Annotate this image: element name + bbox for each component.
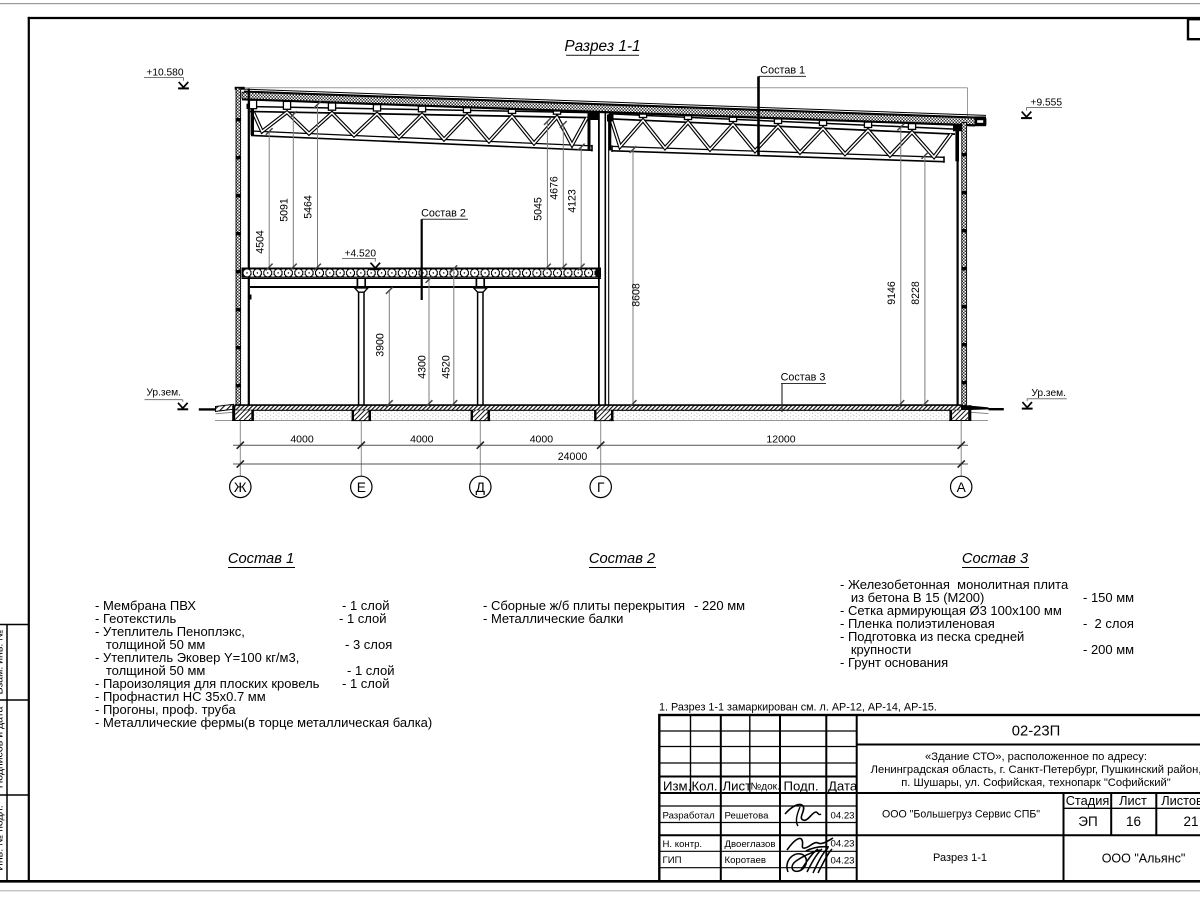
svg-text:04.23: 04.23	[831, 856, 855, 867]
svg-text:Д: Д	[476, 480, 486, 495]
svg-text:04.23: 04.23	[831, 810, 855, 821]
svg-text:- 3 слоя: - 3 слоя	[345, 637, 392, 652]
svg-text:4000: 4000	[410, 434, 434, 446]
svg-text:- 200 мм: - 200 мм	[1083, 642, 1134, 657]
svg-text:4000: 4000	[530, 434, 554, 446]
svg-text:16: 16	[1126, 814, 1141, 829]
svg-text:Решетова: Решетова	[725, 810, 770, 821]
svg-text:Кол.: Кол.	[692, 778, 718, 793]
svg-text:4520: 4520	[441, 355, 453, 379]
svg-text:- 220 мм: - 220 мм	[694, 598, 745, 613]
svg-text:+4.520: +4.520	[345, 249, 377, 260]
svg-text:Ж: Ж	[234, 480, 247, 495]
svg-text:А: А	[957, 480, 967, 495]
svg-text:Состав 2: Состав 2	[589, 551, 655, 567]
svg-text:4123: 4123	[567, 189, 579, 213]
svg-text:5091: 5091	[279, 198, 291, 222]
svg-text:4504: 4504	[255, 230, 267, 254]
svg-text:Е: Е	[357, 480, 366, 495]
svg-text:Ур.зем.: Ур.зем.	[146, 388, 181, 399]
svg-text:12000: 12000	[766, 434, 795, 446]
svg-text:Лист: Лист	[723, 778, 752, 793]
svg-text:Дата: Дата	[828, 778, 858, 793]
svg-text:04.23: 04.23	[831, 839, 855, 850]
svg-text:Ур.зем.: Ур.зем.	[1031, 388, 1066, 399]
svg-text:Ленинградская область, г. Санк: Ленинградская область, г. Санкт-Петербур…	[871, 764, 1200, 776]
svg-text:9146: 9146	[886, 281, 898, 305]
svg-text:ЭП: ЭП	[1078, 814, 1097, 829]
svg-text:Подписов и дата: Подписов и дата	[0, 707, 6, 789]
svg-text:Двоеглазов: Двоеглазов	[725, 839, 776, 850]
svg-text:Г: Г	[597, 480, 605, 495]
svg-text:- 1 слой: - 1 слой	[342, 676, 390, 691]
svg-text:Состав 1: Состав 1	[760, 65, 805, 77]
svg-text:Листов: Листов	[1161, 793, 1200, 808]
svg-text:Инв. № подл.: Инв. № подл.	[0, 805, 6, 870]
svg-text:- 2 слоя: - 2 слоя	[1083, 616, 1134, 631]
svg-text:Стадия: Стадия	[1066, 793, 1110, 808]
svg-text:5045: 5045	[533, 197, 545, 221]
svg-text:- Металлические фермы(в торце: - Металлические фермы(в торце металличес…	[95, 715, 432, 730]
svg-text:Разрез 1-1: Разрез 1-1	[564, 38, 640, 55]
svg-text:Состав 3: Состав 3	[962, 551, 1029, 567]
svg-text:«Здание СТО», расположенное по: «Здание СТО», расположенное по адресу:	[925, 751, 1147, 763]
svg-text:Взам. инв. №: Взам. инв. №	[0, 629, 6, 694]
svg-text:21: 21	[1183, 814, 1198, 829]
svg-text:ООО "Большегруз Сервис СПБ": ООО "Большегруз Сервис СПБ"	[882, 809, 1040, 821]
svg-text:Разработал: Разработал	[663, 810, 715, 821]
svg-text:+10.580: +10.580	[146, 68, 183, 79]
svg-text:ГИП: ГИП	[663, 855, 682, 866]
svg-text:4676: 4676	[549, 176, 561, 200]
svg-text:- Грунт основания: - Грунт основания	[840, 655, 948, 670]
svg-text:5464: 5464	[303, 195, 315, 219]
svg-text:ООО "Альянс": ООО "Альянс"	[1102, 852, 1186, 866]
svg-text:- 1 слой: - 1 слой	[339, 611, 387, 626]
svg-text:8608: 8608	[631, 283, 643, 307]
svg-text:8228: 8228	[910, 281, 922, 305]
svg-text:4300: 4300	[417, 355, 429, 379]
svg-text:Лист: Лист	[1119, 793, 1147, 808]
svg-text:1. Разрез 1-1 замаркирован см.: 1. Разрез 1-1 замаркирован см. л. АР-12,…	[659, 702, 937, 714]
svg-text:02-23П: 02-23П	[1012, 724, 1060, 740]
svg-text:Подп.: Подп.	[784, 778, 819, 793]
svg-text:п. Шушары, ул. Софийская, техн: п. Шушары, ул. Софийская, технопарк "Соф…	[901, 777, 1171, 789]
svg-text:Коротаев: Коротаев	[725, 855, 766, 866]
svg-text:3900: 3900	[374, 333, 386, 357]
svg-text:Изм.: Изм.	[663, 778, 691, 793]
svg-text:Состав 2: Состав 2	[421, 207, 466, 219]
svg-text:+9.555: +9.555	[1031, 98, 1063, 109]
svg-text:Состав 1: Состав 1	[228, 551, 294, 567]
svg-text:4000: 4000	[290, 434, 314, 446]
svg-text:Разрез 1-1: Разрез 1-1	[933, 852, 987, 864]
svg-text:- 150 мм: - 150 мм	[1083, 590, 1134, 605]
svg-text:Состав 3: Состав 3	[781, 372, 826, 384]
svg-text:№док.: №док.	[751, 781, 780, 792]
svg-text:24000: 24000	[558, 451, 588, 463]
svg-text:- Металлические балки: - Металлические балки	[483, 611, 623, 626]
svg-text:Н. контр.: Н. контр.	[663, 839, 703, 850]
